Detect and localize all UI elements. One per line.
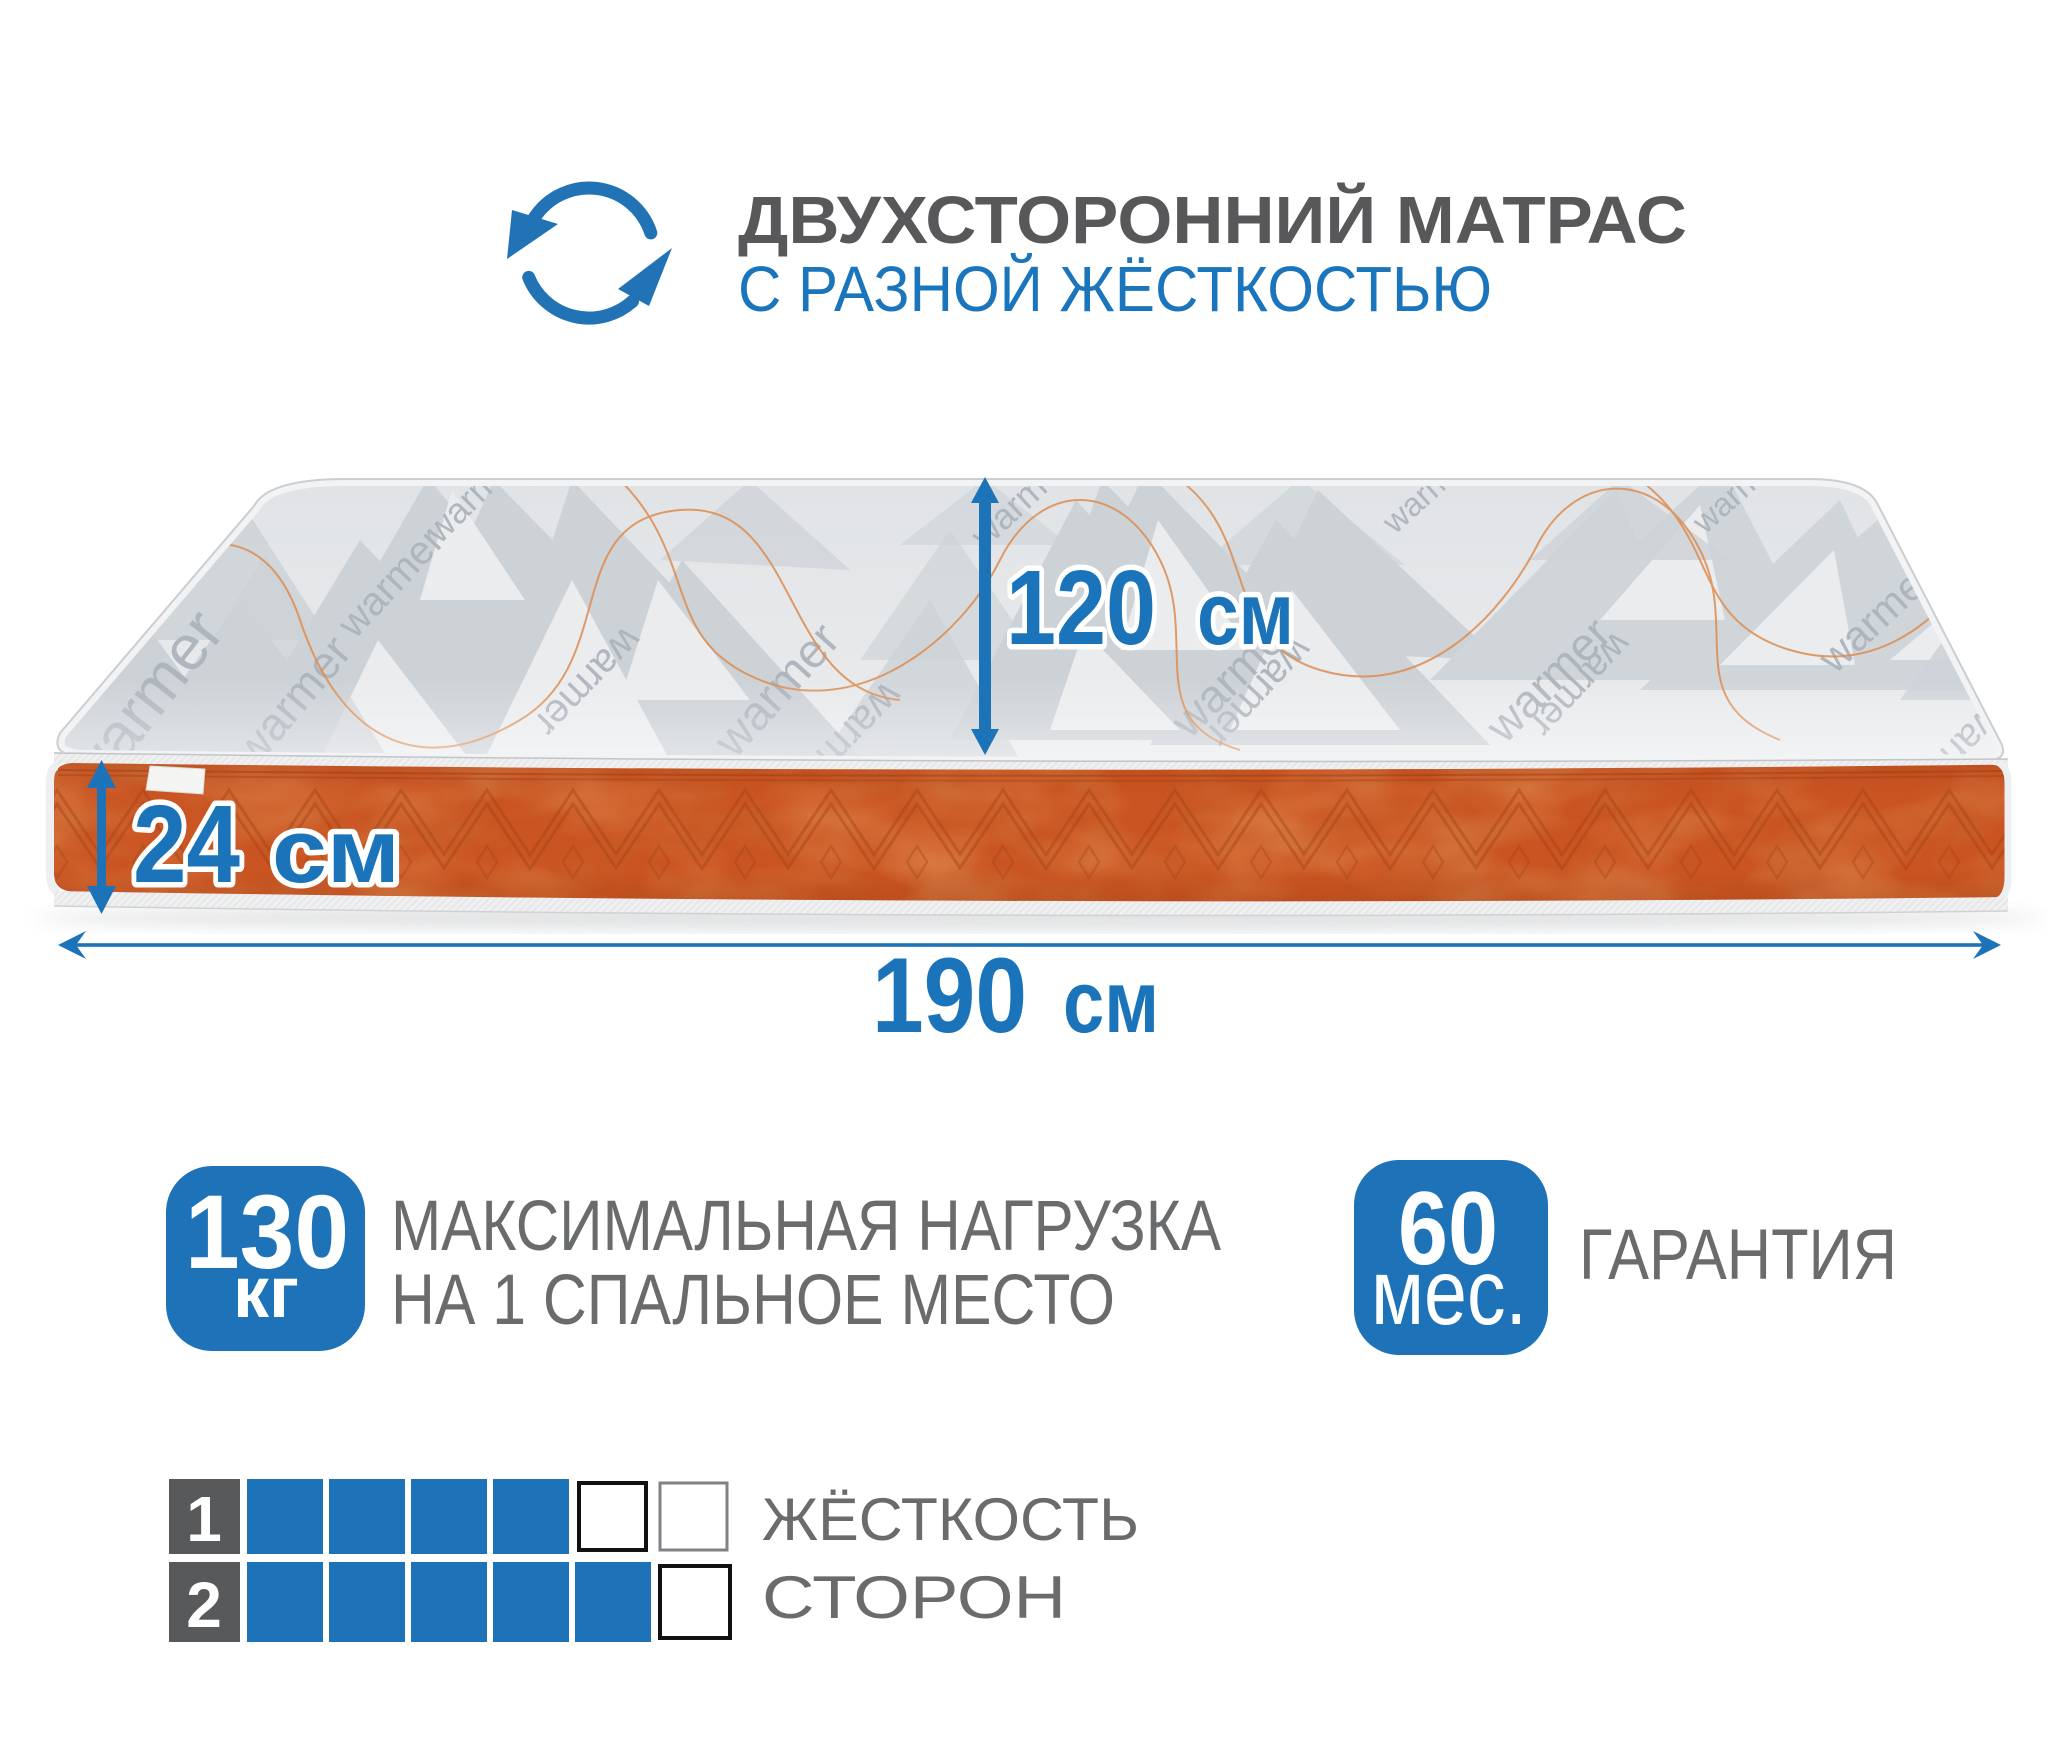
svg-text:С РАЗНОЙ ЖЁСТКОСТЬЮ: С РАЗНОЙ ЖЁСТКОСТЬЮ <box>738 252 1492 325</box>
svg-text:24: 24 <box>133 783 240 906</box>
svg-text:ГАРАНТИЯ: ГАРАНТИЯ <box>1579 1216 1897 1295</box>
svg-text:см: см <box>272 802 400 902</box>
svg-text:СТОРОН: СТОРОН <box>762 1564 1066 1631</box>
svg-text:ЖЁСТКОСТЬ: ЖЁСТКОСТЬ <box>762 1486 1139 1553</box>
svg-text:НА 1 СПАЛЬНОЕ МЕСТО: НА 1 СПАЛЬНОЕ МЕСТО <box>391 1261 1115 1340</box>
svg-text:МАКСИМАЛЬНАЯ НАГРУЗКА: МАКСИМАЛЬНАЯ НАГРУЗКА <box>391 1187 1222 1266</box>
svg-text:120: 120 <box>1006 549 1156 667</box>
svg-text:см: см <box>1197 564 1294 663</box>
svg-text:ДВУХСТОРОННИЙ МАТРАС: ДВУХСТОРОННИЙ МАТРАС <box>738 182 1687 258</box>
svg-text:мес.: мес. <box>1371 1240 1527 1344</box>
svg-text:2: 2 <box>186 1569 222 1641</box>
svg-text:см: см <box>1063 952 1159 1051</box>
svg-text:кг: кг <box>233 1253 299 1333</box>
svg-text:1: 1 <box>186 1483 222 1555</box>
svg-text:190: 190 <box>872 935 1027 1055</box>
